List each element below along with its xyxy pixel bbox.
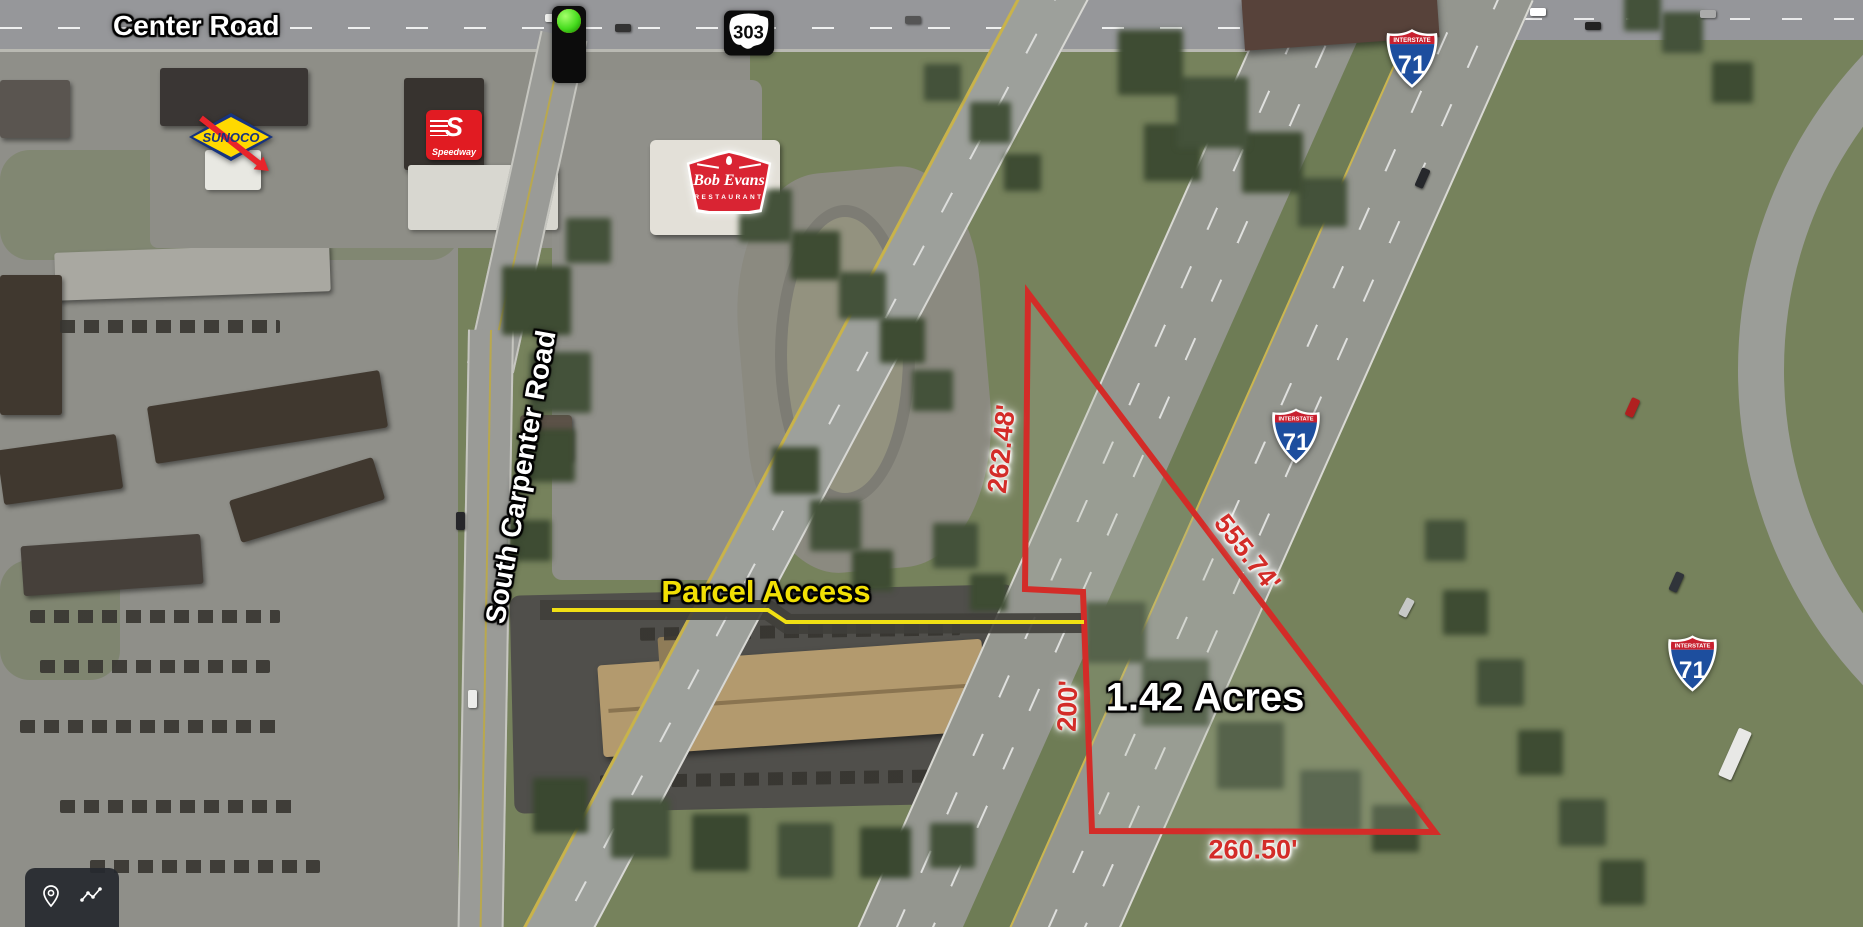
interstate-banner: INTERSTATE xyxy=(1278,416,1313,422)
route-shield-oh-303: 303 xyxy=(723,10,775,56)
bob-evans-subtitle: RESTAURANT xyxy=(681,194,777,201)
label-acreage: 1.42 Acres xyxy=(1106,676,1305,721)
location-pin-icon xyxy=(39,884,63,908)
route-number: 303 xyxy=(733,22,764,43)
route-line-icon xyxy=(79,884,103,908)
speedway-wordmark: Speedway xyxy=(426,147,482,157)
interstate-number: 71 xyxy=(1283,429,1310,456)
interstate-shield-71-bottom: INTERSTATE 71 xyxy=(1666,633,1719,694)
label-parcel-access: Parcel Access xyxy=(661,574,870,610)
location-pin-button[interactable] xyxy=(35,880,67,912)
map-toolbar xyxy=(25,868,119,927)
route-line-button[interactable] xyxy=(75,880,107,912)
interstate-banner: INTERSTATE xyxy=(1393,37,1430,44)
sunoco-logo: SUNOCO xyxy=(189,109,273,165)
parcel-overlay xyxy=(0,0,1863,927)
speedway-logo: S Speedway xyxy=(426,110,482,160)
interstate-number: 71 xyxy=(1398,51,1426,79)
sunoco-wordmark: SUNOCO xyxy=(189,130,273,145)
bob-evans-lamp-icon xyxy=(726,156,732,165)
aerial-parcel-map: Center Road South Carpenter Road Parcel … xyxy=(0,0,1863,927)
dimension-west-200: 200' xyxy=(1052,680,1085,733)
dimension-south-260: 260.50' xyxy=(1208,835,1297,866)
parcel-outline xyxy=(1025,293,1435,832)
interstate-number: 71 xyxy=(1679,657,1706,684)
bob-evans-wordmark: Bob Evans xyxy=(681,172,777,190)
label-center-road: Center Road xyxy=(113,10,279,42)
speedway-initial: S xyxy=(426,110,482,144)
interstate-shield-71-middle: INTERSTATE 71 xyxy=(1270,406,1322,466)
bob-evans-logo: Bob Evans RESTAURANT xyxy=(681,150,777,214)
interstate-banner: INTERSTATE xyxy=(1675,644,1711,650)
interstate-shield-71-top: INTERSTATE 71 xyxy=(1384,28,1440,89)
green-light xyxy=(557,9,581,33)
traffic-light-icon xyxy=(552,6,586,83)
